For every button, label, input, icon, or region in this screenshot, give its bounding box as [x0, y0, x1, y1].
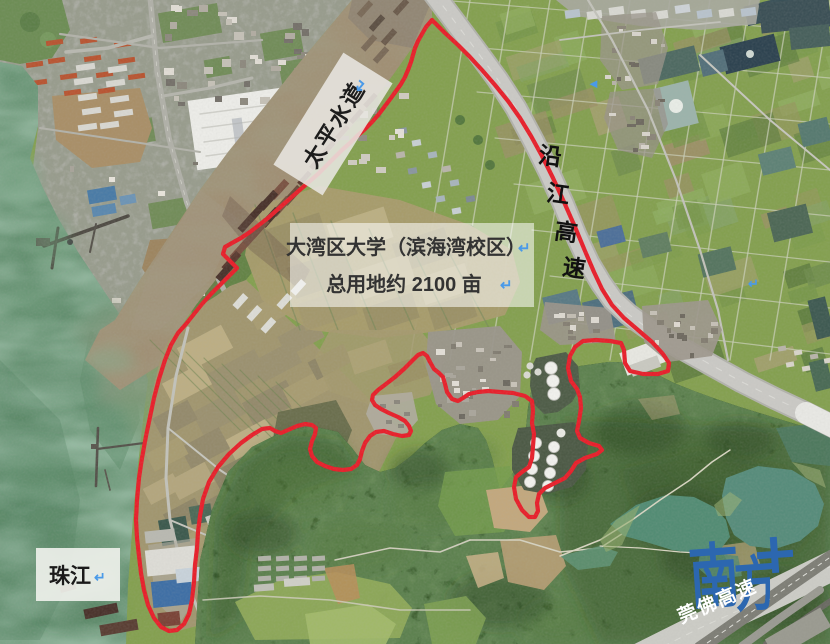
svg-text:高: 高: [553, 218, 579, 247]
svg-text:↵: ↵: [94, 569, 106, 585]
svg-text:珠江: 珠江: [49, 565, 91, 588]
svg-text:◄: ◄: [587, 76, 600, 91]
svg-text:总用地约 2100 亩: 总用地约 2100 亩: [326, 272, 482, 296]
svg-text:↵: ↵: [518, 240, 531, 257]
svg-text:速: 速: [561, 254, 587, 283]
svg-text:大湾区大学（滨海湾校区）: 大湾区大学（滨海湾校区）: [286, 235, 526, 259]
svg-text:江: 江: [545, 180, 571, 209]
svg-text:↵: ↵: [748, 276, 759, 291]
svg-text:↵: ↵: [500, 277, 513, 294]
svg-text:沿: 沿: [537, 142, 563, 171]
